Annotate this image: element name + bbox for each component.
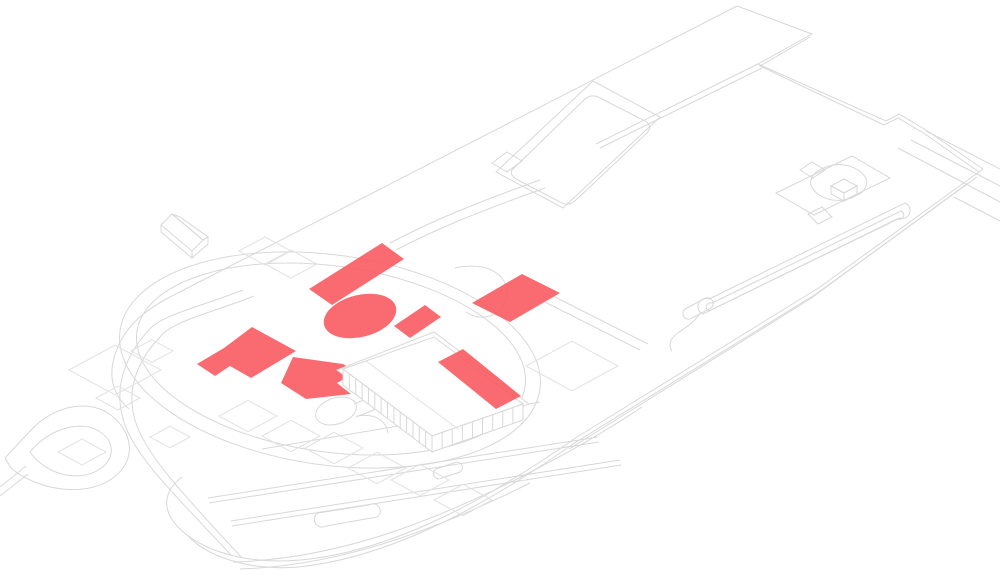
path-north-2 [396, 188, 545, 250]
lawn-ellipse-outer [105, 227, 554, 494]
bottom-path-2 [240, 483, 530, 569]
road-east-4 [954, 197, 1000, 221]
house-roof-left [161, 214, 203, 251]
platform-tab [808, 207, 832, 224]
sports-field-inner [511, 96, 649, 204]
garden-plot [262, 420, 320, 451]
loop-road-inner [30, 426, 111, 476]
site-boundary-southeast [167, 169, 983, 561]
site-plan-canvas [0, 0, 1000, 580]
garden-plot [150, 426, 190, 448]
road-east-2 [911, 140, 1000, 186]
garden-plot [239, 237, 291, 265]
garden-plot [131, 340, 173, 363]
path-capsule-bottom [314, 504, 380, 527]
platform-inner [811, 164, 867, 200]
garden-plot [58, 439, 106, 465]
cube-left [831, 186, 844, 201]
road-south-curve-1 [120, 290, 243, 556]
site-boundary-northeast [737, 6, 983, 169]
garden-row-1 [208, 437, 599, 503]
garden-row-2 [231, 460, 621, 526]
road-east-1 [926, 131, 1000, 169]
site-corner-double-east [884, 118, 979, 172]
path-east-pair [545, 296, 648, 350]
garden-plot [526, 341, 618, 391]
road-south-curve-2 [132, 296, 254, 558]
cube-top [831, 179, 857, 193]
terrace-edge [596, 64, 762, 148]
highlight-bar-west-stepped [197, 327, 296, 378]
culdesac-oval [312, 392, 360, 430]
site-plan-page [0, 0, 1000, 580]
garden-plot [96, 386, 140, 410]
highlight-bar-northeast [472, 274, 560, 322]
path-north-1 [390, 180, 540, 243]
garden-plot [434, 484, 492, 515]
path-stub [434, 462, 463, 479]
house-roof-right [172, 214, 208, 240]
